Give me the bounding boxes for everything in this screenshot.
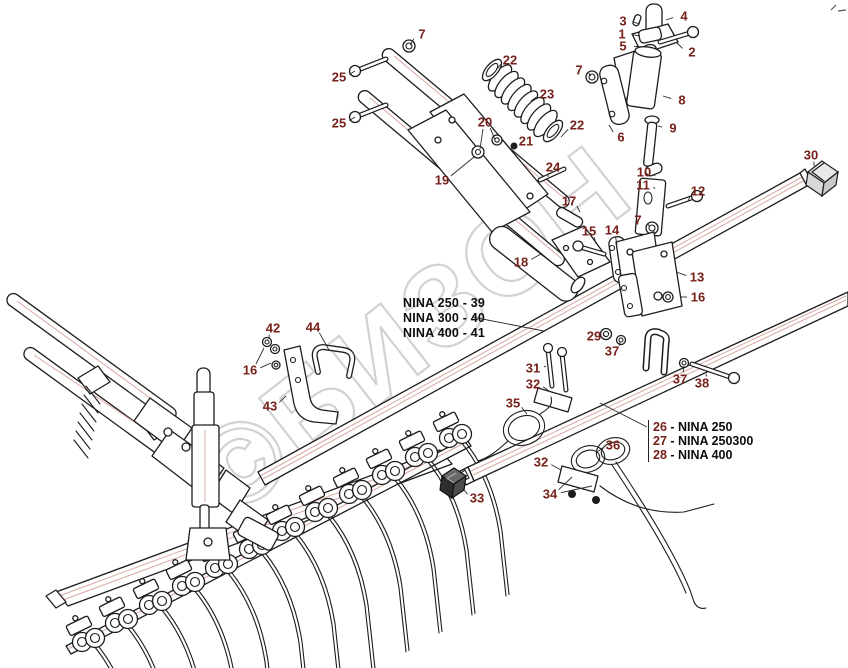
part-label: 42 [266,321,280,336]
variant-line: 26 - NINA 250 [653,420,753,434]
leader-line [464,490,468,494]
part-label: 18 [514,255,528,270]
part-label: 29 [587,329,601,344]
part-label: 7 [575,63,582,78]
part-label: 32 [534,455,548,470]
leader-line [658,126,662,127]
leader-line [609,125,613,132]
leader-line [666,18,673,21]
part-label: 12 [691,184,705,199]
part-label: 30 [804,148,818,163]
part-label: 37 [605,344,619,359]
leader-line [663,96,671,99]
variant-line: NINA 300 - 40 [403,311,485,326]
part-label: 22 [570,118,584,133]
part-label: 16 [691,290,705,305]
bar-end-cap-30 [806,161,838,196]
leader-line [677,43,683,48]
part-label: 6 [617,130,624,145]
part-label: 35 [506,396,520,411]
leader-line [551,465,561,470]
nut-7 [586,71,598,83]
nut-16 [663,292,673,302]
part-label: 16 [243,363,257,378]
variant-line: 28 - NINA 400 [653,448,753,462]
part-label: 4 [680,9,688,24]
part-label: 31 [526,361,540,376]
part-label: 9 [669,121,676,136]
leader-line [544,366,546,367]
part-label: 43 [263,399,277,414]
part-label: 15 [582,224,596,239]
part-label: 37 [673,372,687,387]
nut-34 [568,490,600,504]
variant-note-right: 26 - NINA 250 27 - NINA 250300 28 - NINA… [648,420,753,462]
part-label: 7 [418,27,425,42]
part-label: 44 [306,320,321,335]
part-label: 32 [526,377,540,392]
part-label: 36 [606,438,620,453]
part-label: 2 [688,45,695,60]
part-label: 20 [478,115,492,130]
part-label: 33 [470,491,484,506]
variant-line: 27 - NINA 250300 [653,434,753,448]
nut-7 [403,40,415,52]
clamp-32 [558,466,598,492]
rod-9 [643,116,659,167]
part-label: 38 [695,376,709,391]
part-label: 8 [678,93,685,108]
washer-16 [272,361,280,369]
part-label: 22 [503,53,517,68]
part-label: 21 [519,134,533,149]
part-label: 11 [636,178,650,193]
parts-diagram-page: ©БИЗОН [0,0,848,668]
part-label: 34 [543,487,558,502]
bolt-31 [544,344,567,391]
part-label: 14 [605,223,620,238]
nut-42 [263,338,280,354]
part-label: 5 [619,39,626,54]
variant-line: NINA 400 - 41 [403,326,485,341]
part-label: 19 [435,173,449,188]
part-label: 17 [562,194,576,209]
part-label: 7 [634,213,641,228]
variant-note-left: NINA 250 - 39 NINA 300 - 40 NINA 400 - 4… [403,296,485,341]
variant-line: NINA 250 - 39 [403,296,485,311]
bolt-25 [350,59,387,77]
pin-3 [632,14,641,26]
part-label: 24 [546,160,561,175]
corner-mark [831,5,846,11]
leader-line [654,174,655,176]
part-label: 23 [540,87,554,102]
part-label: 25 [332,70,346,85]
part-label: 13 [690,270,704,285]
washer-19 [472,146,484,158]
part-label: 25 [332,116,346,131]
nut-29 [601,329,612,340]
